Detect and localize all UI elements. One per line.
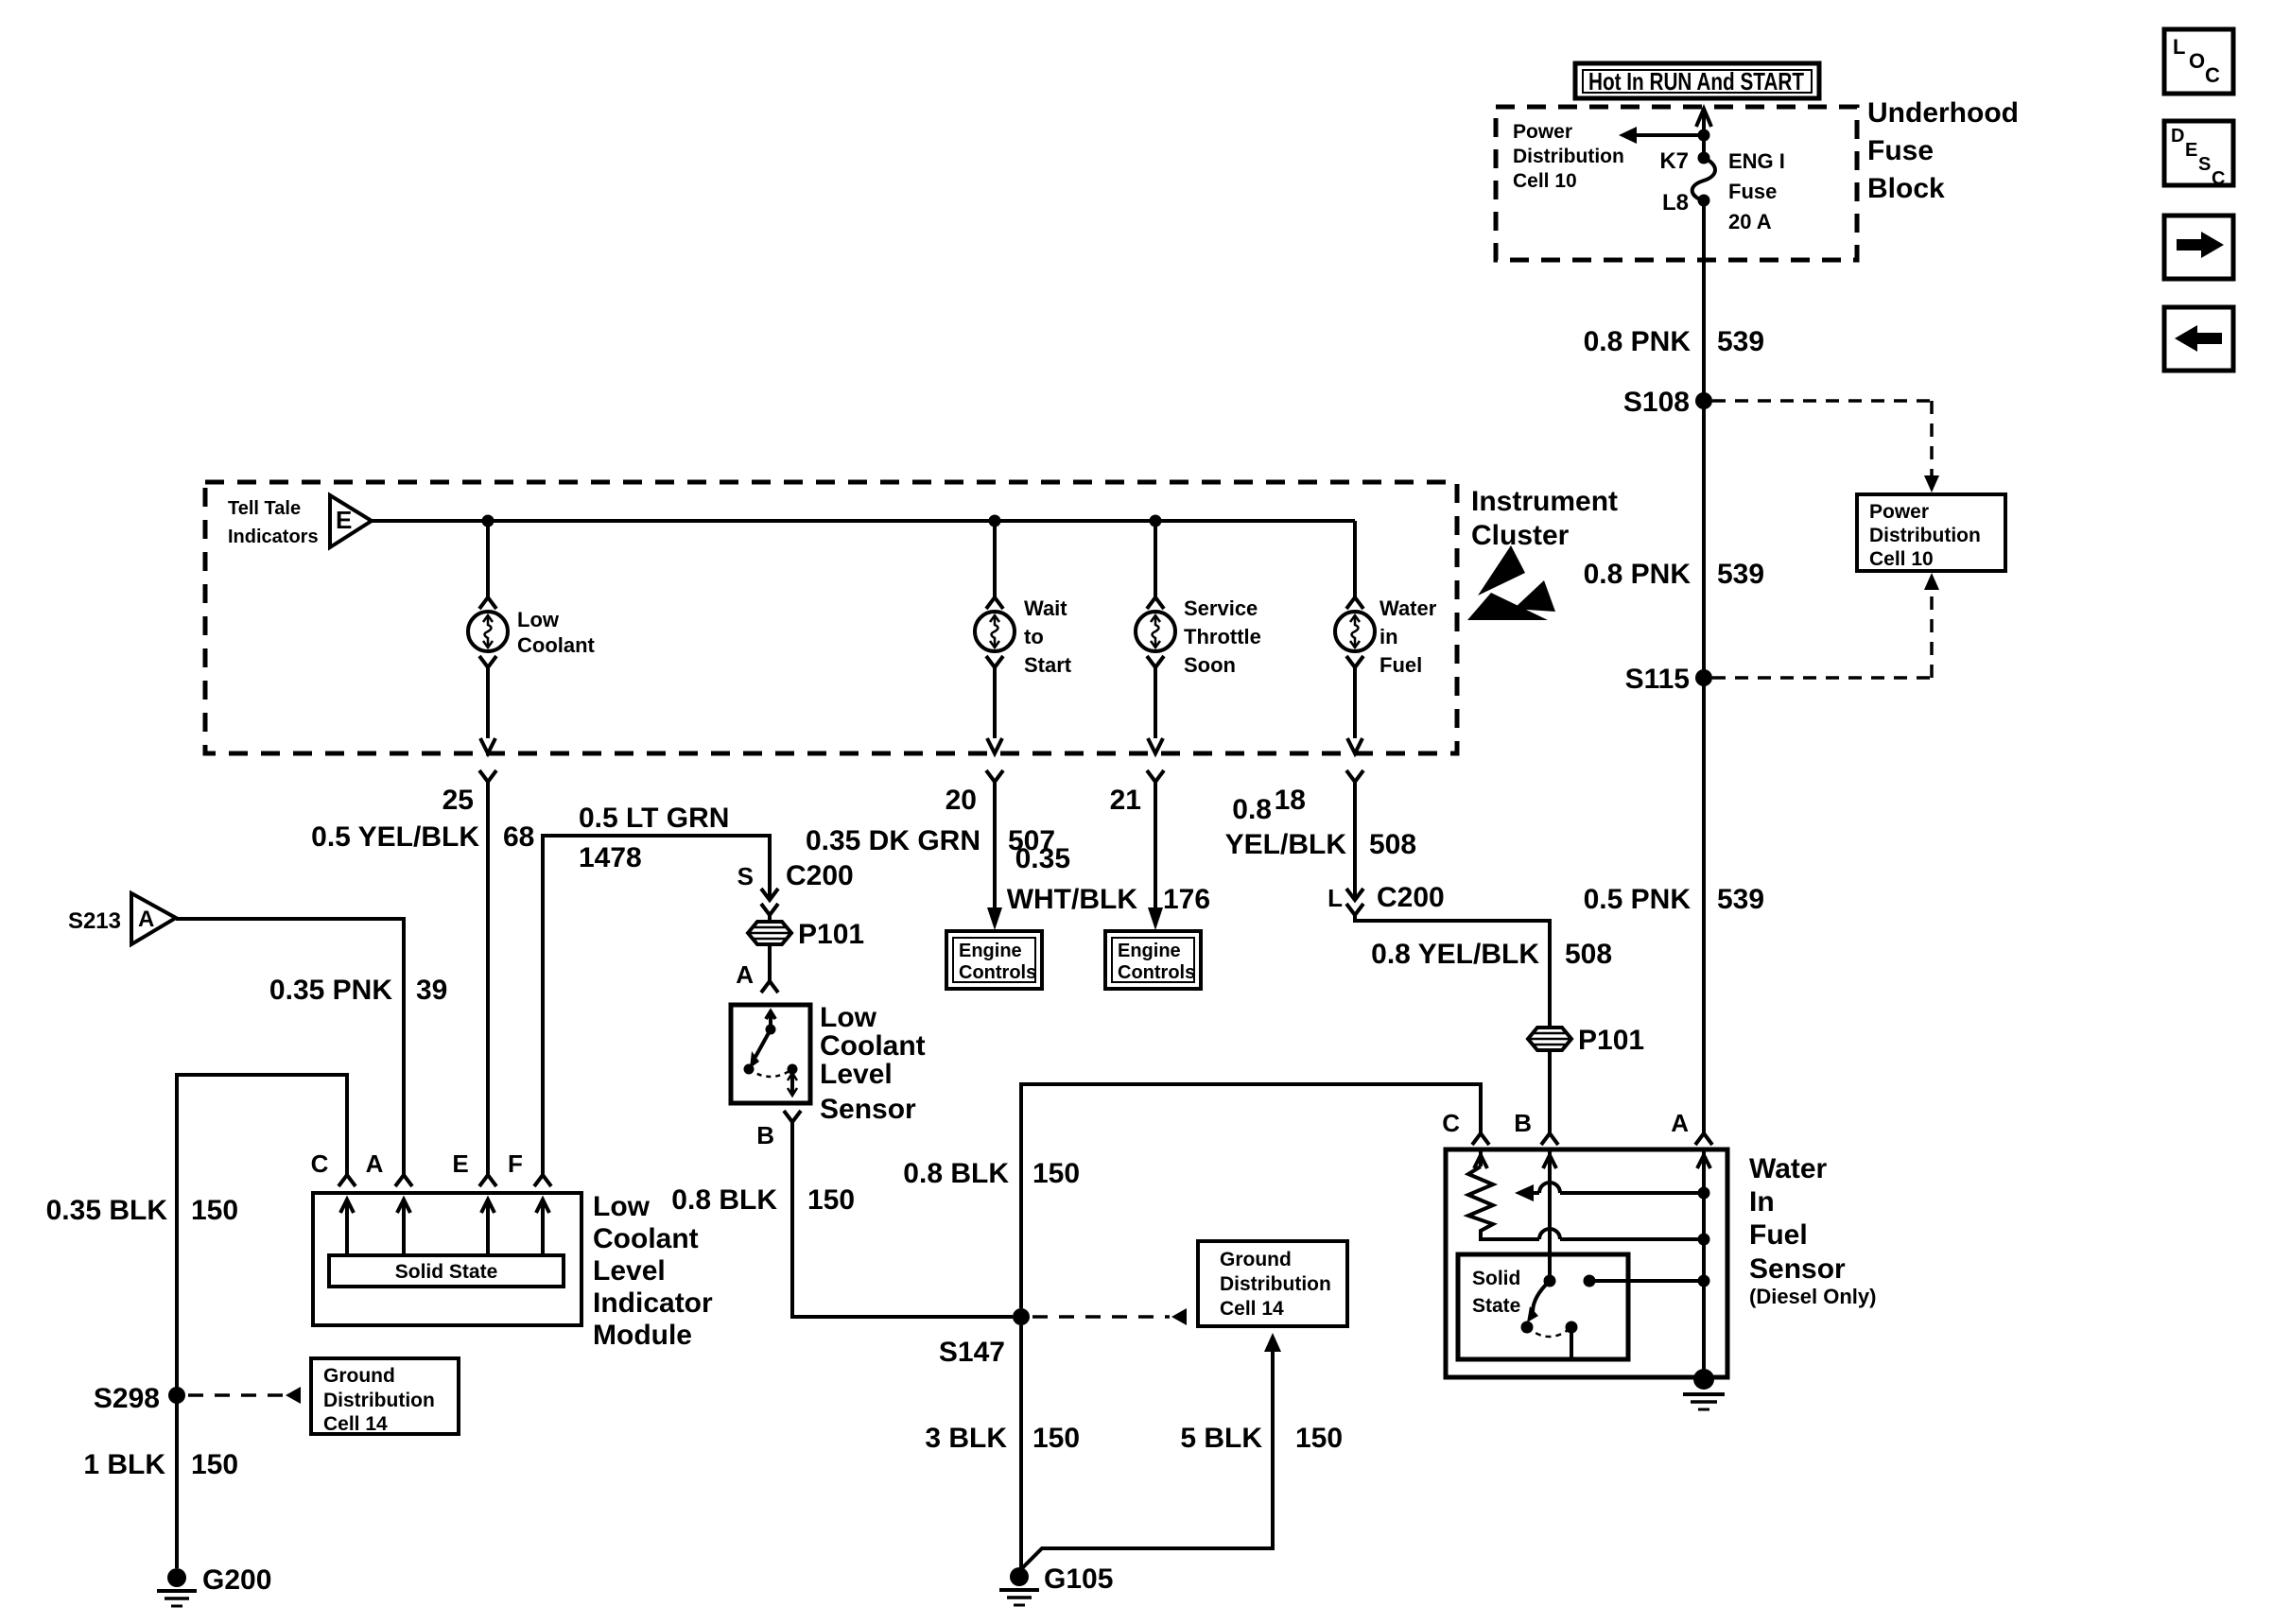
svg-text:0.5 PNK: 0.5 PNK: [1584, 884, 1692, 915]
svg-text:Fuse: Fuse: [1728, 180, 1777, 203]
svg-text:E: E: [336, 506, 352, 534]
svg-text:D: D: [2171, 126, 2184, 147]
svg-text:Cell 14: Cell 14: [323, 1413, 388, 1435]
svg-text:0.8 YEL/BLK: 0.8 YEL/BLK: [1371, 939, 1539, 970]
svg-text:S: S: [737, 862, 754, 890]
svg-text:P101: P101: [798, 919, 864, 950]
svg-text:1 BLK: 1 BLK: [83, 1449, 165, 1480]
svg-text:Cell 10: Cell 10: [1869, 548, 1934, 570]
svg-text:Power: Power: [1513, 121, 1572, 143]
svg-text:C: C: [311, 1149, 329, 1178]
svg-text:A: A: [366, 1149, 384, 1178]
svg-text:Cell 10: Cell 10: [1513, 170, 1577, 192]
svg-text:to: to: [1024, 625, 1044, 648]
svg-text:L: L: [1327, 884, 1343, 912]
svg-text:176: 176: [1163, 884, 1210, 915]
svg-text:0.35 DK GRN: 0.35 DK GRN: [806, 825, 980, 856]
svg-text:C: C: [1442, 1109, 1460, 1137]
svg-text:Level: Level: [820, 1059, 893, 1090]
svg-text:539: 539: [1717, 326, 1764, 357]
svg-text:20: 20: [946, 785, 977, 816]
svg-text:Power: Power: [1869, 501, 1929, 523]
svg-text:C200: C200: [786, 860, 854, 891]
svg-text:Block: Block: [1867, 173, 1945, 204]
svg-text:0.8 BLK: 0.8 BLK: [671, 1184, 777, 1216]
svg-text:0.8 PNK: 0.8 PNK: [1584, 559, 1692, 590]
svg-text:A: A: [138, 907, 154, 932]
svg-text:68: 68: [503, 821, 534, 853]
svg-text:Fuse: Fuse: [1867, 135, 1934, 166]
svg-text:Underhood: Underhood: [1867, 97, 2019, 129]
svg-text:S147: S147: [939, 1337, 1005, 1368]
svg-text:Coolant: Coolant: [593, 1223, 699, 1254]
svg-text:S108: S108: [1623, 387, 1690, 418]
svg-text:E: E: [452, 1149, 468, 1178]
svg-text:B: B: [756, 1121, 774, 1149]
svg-text:C: C: [2212, 168, 2225, 189]
svg-text:L: L: [2173, 35, 2185, 59]
svg-text:Soon: Soon: [1184, 653, 1236, 677]
svg-text:Module: Module: [593, 1320, 692, 1351]
svg-text:Sensor: Sensor: [1749, 1253, 1846, 1285]
svg-text:State: State: [1472, 1295, 1520, 1317]
svg-text:Coolant: Coolant: [517, 633, 596, 657]
svg-text:Low: Low: [593, 1191, 651, 1222]
svg-text:WHT/BLK: WHT/BLK: [1007, 884, 1138, 915]
svg-text:Ground: Ground: [1220, 1249, 1292, 1270]
svg-text:Coolant: Coolant: [820, 1030, 926, 1062]
svg-text:150: 150: [191, 1195, 238, 1226]
svg-text:Indicator: Indicator: [593, 1287, 713, 1319]
svg-text:S115: S115: [1625, 664, 1690, 695]
svg-text:Level: Level: [593, 1255, 666, 1287]
svg-text:Controls: Controls: [959, 962, 1036, 983]
svg-text:Engine: Engine: [1118, 941, 1181, 961]
svg-text:F: F: [508, 1149, 523, 1178]
svg-text:539: 539: [1717, 884, 1764, 915]
svg-text:0.5 LT GRN: 0.5 LT GRN: [579, 803, 729, 834]
svg-text:Solid: Solid: [1472, 1268, 1520, 1289]
svg-text:Solid State: Solid State: [395, 1261, 498, 1283]
svg-text:0.5 YEL/BLK: 0.5 YEL/BLK: [311, 821, 479, 853]
svg-text:Distribution: Distribution: [323, 1390, 435, 1411]
svg-text:Wait: Wait: [1024, 596, 1067, 620]
svg-text:(Diesel Only): (Diesel Only): [1749, 1285, 1876, 1308]
svg-text:G105: G105: [1044, 1564, 1113, 1595]
svg-text:Throttle: Throttle: [1184, 625, 1261, 648]
svg-text:539: 539: [1717, 559, 1764, 590]
svg-text:C200: C200: [1377, 882, 1445, 913]
svg-text:3 BLK: 3 BLK: [925, 1423, 1007, 1454]
svg-text:Controls: Controls: [1118, 962, 1195, 983]
svg-text:A: A: [1671, 1109, 1689, 1137]
svg-text:Fuel: Fuel: [1749, 1219, 1808, 1251]
svg-text:Fuel: Fuel: [1379, 653, 1422, 677]
svg-text:Distribution: Distribution: [1869, 525, 1981, 546]
svg-text:Service: Service: [1184, 596, 1258, 620]
svg-text:20 A: 20 A: [1728, 210, 1772, 233]
svg-text:K7: K7: [1659, 148, 1689, 174]
svg-text:Start: Start: [1024, 653, 1072, 677]
svg-text:0.35 BLK: 0.35 BLK: [46, 1195, 168, 1226]
svg-text:150: 150: [1032, 1423, 1080, 1454]
svg-text:Water: Water: [1749, 1153, 1828, 1184]
svg-text:In: In: [1749, 1186, 1775, 1218]
svg-text:39: 39: [416, 975, 447, 1006]
svg-text:Hot In RUN And START: Hot In RUN And START: [1588, 67, 1804, 95]
svg-text:150: 150: [1032, 1158, 1080, 1189]
svg-text:Distribution: Distribution: [1220, 1273, 1331, 1295]
svg-text:Engine: Engine: [959, 941, 1022, 961]
svg-text:Tell Tale: Tell Tale: [228, 498, 301, 519]
svg-text:Water: Water: [1379, 596, 1437, 620]
svg-text:0.8 PNK: 0.8 PNK: [1584, 326, 1692, 357]
svg-text:in: in: [1379, 625, 1398, 648]
svg-text:Cluster: Cluster: [1471, 520, 1570, 551]
svg-text:0.35: 0.35: [1015, 843, 1070, 874]
svg-text:S298: S298: [94, 1383, 160, 1414]
svg-text:O: O: [2189, 49, 2205, 73]
svg-text:Low: Low: [820, 1002, 877, 1033]
svg-text:Instrument: Instrument: [1471, 486, 1618, 517]
svg-text:0.8 BLK: 0.8 BLK: [903, 1158, 1009, 1189]
svg-text:C: C: [2205, 63, 2220, 87]
svg-text:P101: P101: [1578, 1025, 1644, 1056]
svg-text:YEL/BLK: YEL/BLK: [1225, 829, 1347, 860]
svg-text:18: 18: [1275, 785, 1306, 816]
svg-text:E: E: [2185, 140, 2197, 161]
svg-text:Sensor: Sensor: [820, 1094, 916, 1125]
svg-text:S: S: [2198, 154, 2211, 175]
svg-text:0.35 PNK: 0.35 PNK: [269, 975, 392, 1006]
svg-text:1478: 1478: [579, 842, 642, 873]
svg-text:G200: G200: [202, 1564, 271, 1596]
svg-text:150: 150: [807, 1184, 855, 1216]
svg-text:Distribution: Distribution: [1513, 146, 1624, 167]
svg-text:5 BLK: 5 BLK: [1180, 1423, 1262, 1454]
svg-text:21: 21: [1110, 785, 1141, 816]
svg-text:150: 150: [1295, 1423, 1343, 1454]
svg-text:508: 508: [1369, 829, 1416, 860]
svg-text:25: 25: [442, 785, 474, 816]
svg-text:Low: Low: [517, 608, 560, 631]
svg-text:L8: L8: [1662, 190, 1689, 216]
svg-text:A: A: [736, 960, 754, 989]
svg-text:150: 150: [191, 1449, 238, 1480]
svg-text:Indicators: Indicators: [228, 527, 319, 547]
svg-text:508: 508: [1565, 939, 1612, 970]
svg-text:Cell 14: Cell 14: [1220, 1298, 1284, 1320]
svg-text:S213: S213: [68, 908, 121, 934]
svg-text:Ground: Ground: [323, 1365, 395, 1387]
svg-text:0.8: 0.8: [1232, 794, 1272, 825]
svg-text:B: B: [1514, 1109, 1532, 1137]
svg-text:ENG I: ENG I: [1728, 149, 1785, 173]
